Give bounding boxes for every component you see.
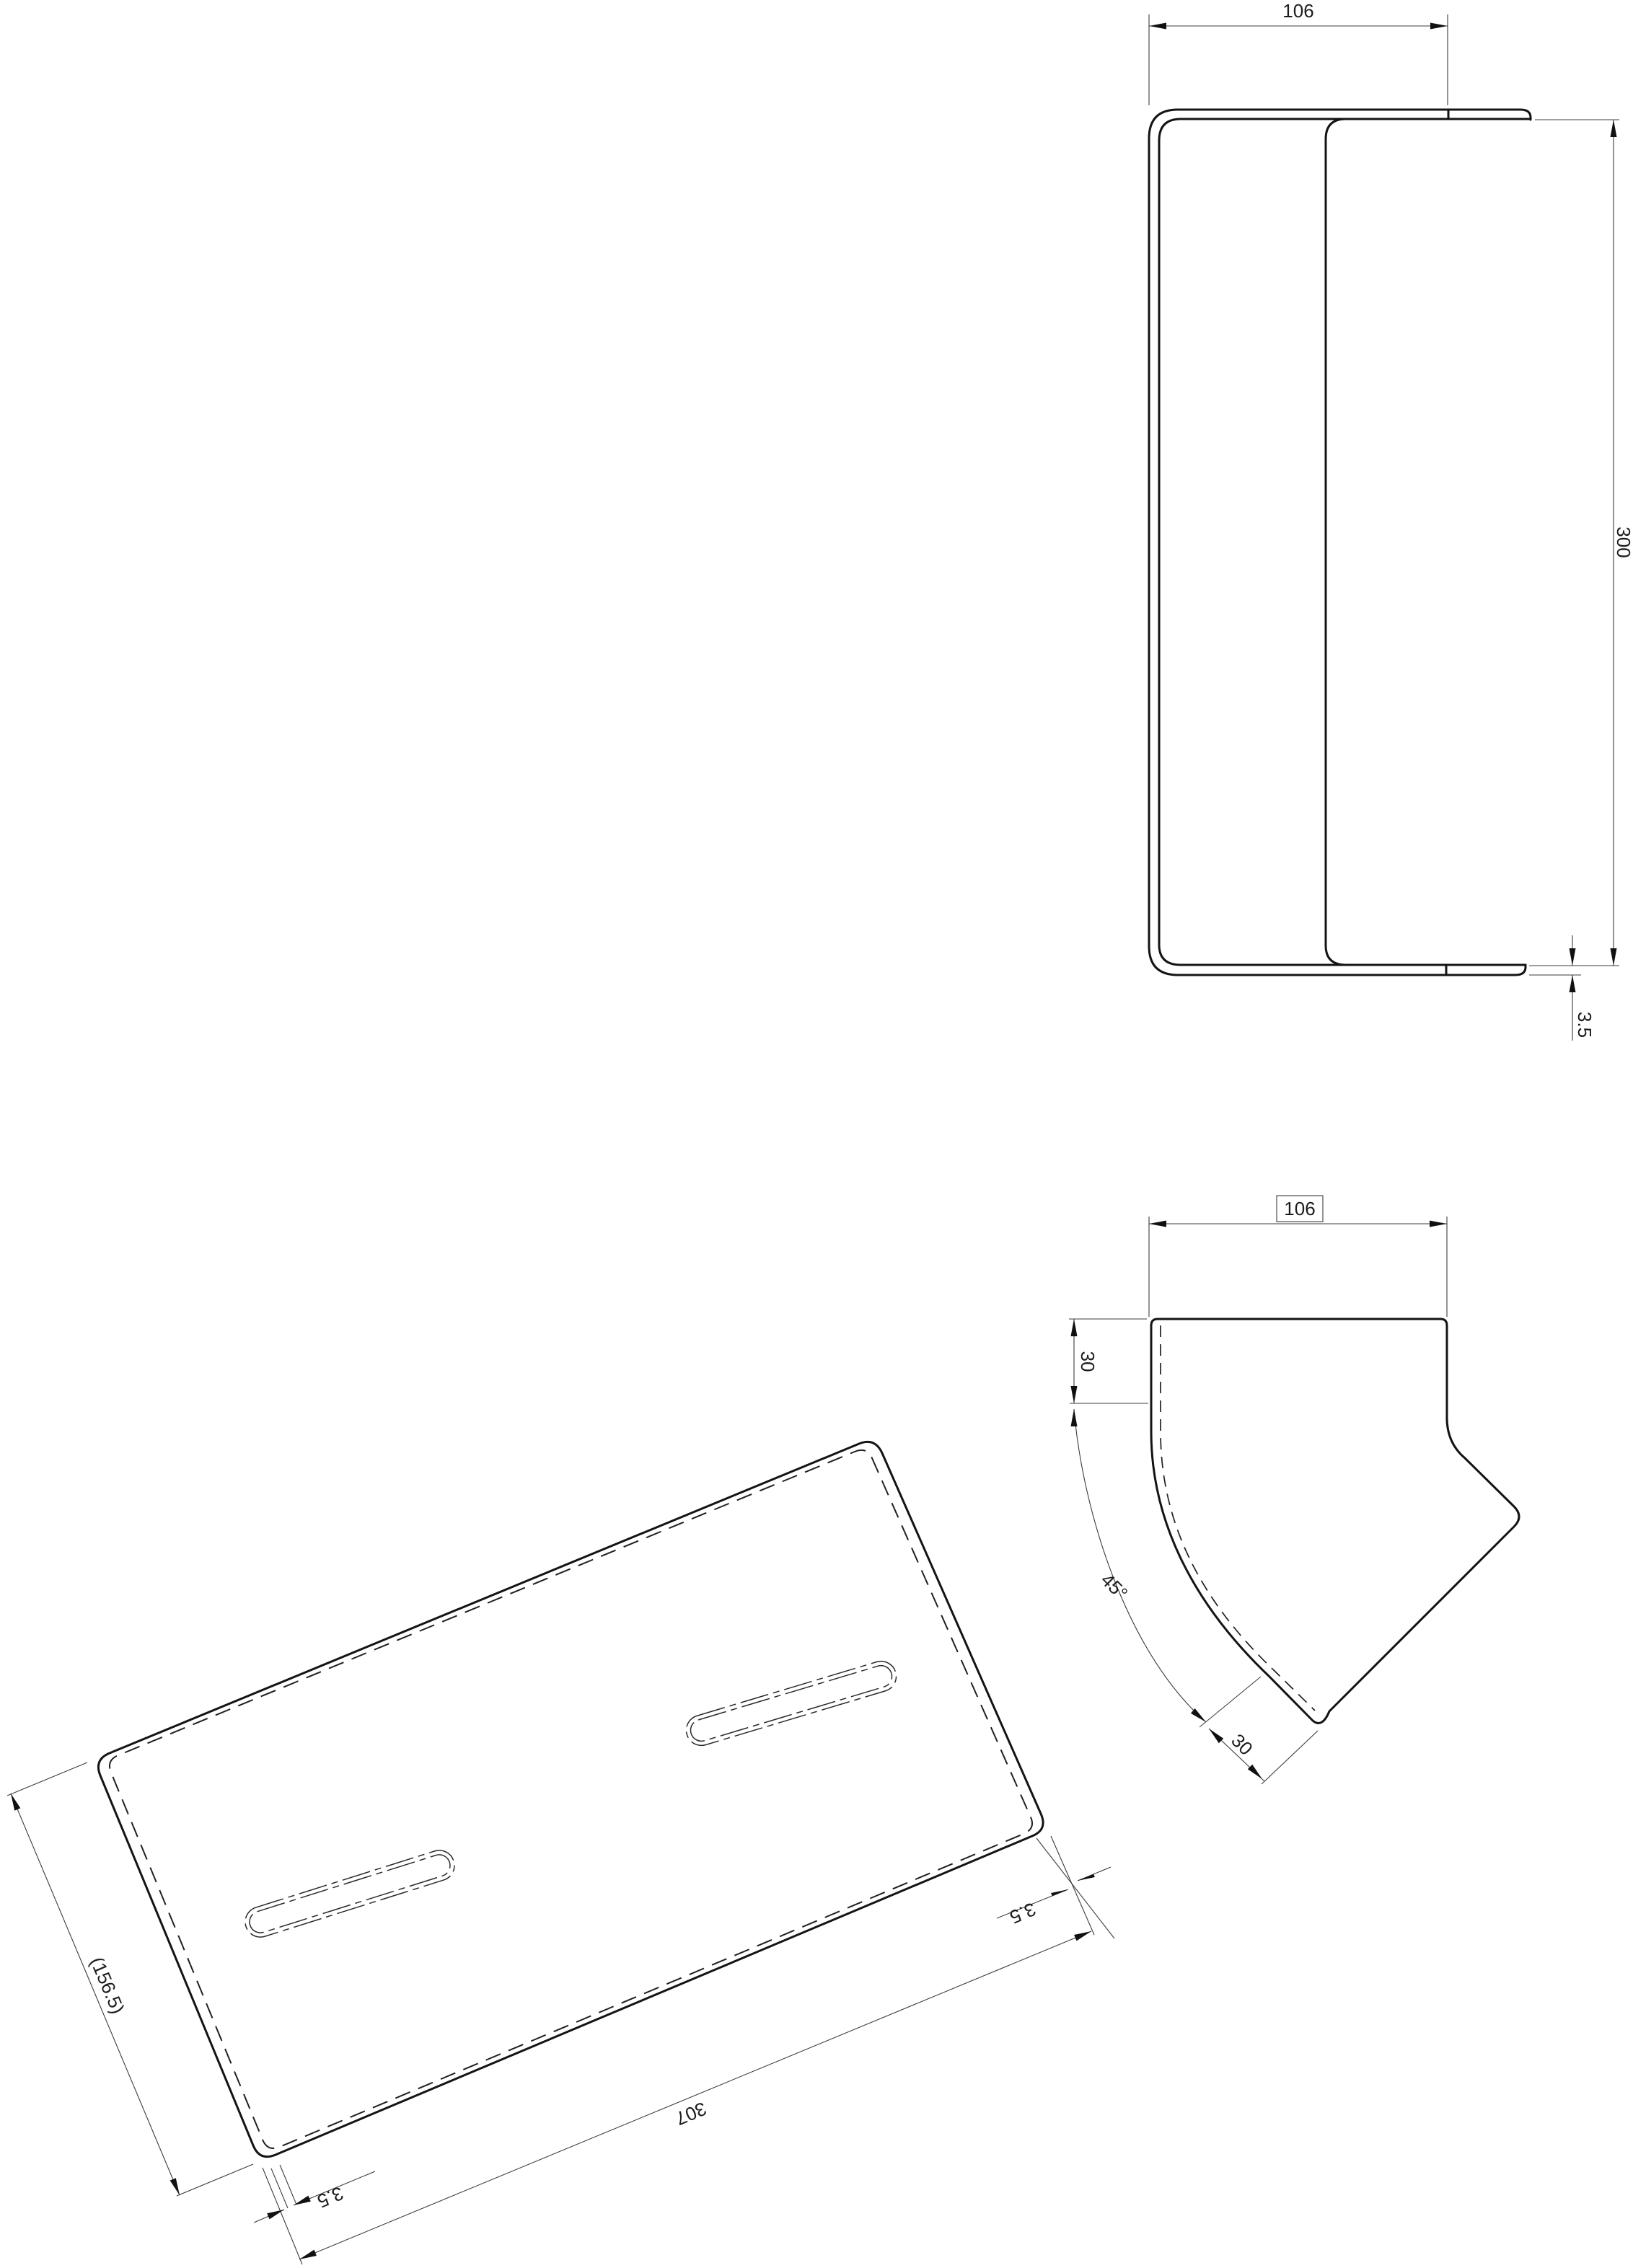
front-outline-inner	[1159, 119, 1531, 965]
flat-pattern-view: (156.5) 307 3.5 3.5	[7, 1442, 1114, 2264]
flat-thickness-right-ext-line	[1036, 1838, 1114, 1938]
technical-drawing: 106 300 3.5 106 30 45° 30	[0, 0, 1633, 2268]
dim-front-height: 300	[1613, 526, 1633, 557]
side-view: 106 30 45° 30	[1069, 1196, 1519, 1784]
dim-side-width: 106	[1284, 1198, 1315, 1219]
front-outline-outer	[1149, 110, 1448, 975]
dim-flat-width-ref: (156.5)	[86, 1954, 129, 2017]
side-width-ext-lines	[1149, 1217, 1447, 1317]
dim-front-thickness: 3.5	[1574, 1012, 1595, 1038]
dim-side-flange: 30	[1227, 1729, 1257, 1760]
side-outline	[1151, 1319, 1519, 1723]
front-bend-line	[1326, 119, 1346, 965]
dim-front-width: 106	[1282, 0, 1313, 22]
front-height-ext-lines	[1529, 120, 1619, 966]
dim-side-offset: 30	[1077, 1351, 1099, 1372]
drawing-sheet: 106 300 3.5 106 30 45° 30	[0, 0, 1633, 2268]
front-bottom-lip	[1446, 965, 1526, 975]
dimension-arrows	[1149, 23, 1617, 993]
dim-flat-thickness-left: 3.5	[314, 2182, 347, 2212]
front-lip-jogs	[1446, 110, 1448, 975]
dim-side-angle: 45°	[1096, 1568, 1132, 1604]
front-view: 106 300 3.5	[1149, 0, 1633, 1041]
dim-flat-thickness-right: 3.5	[1007, 1898, 1039, 1928]
flat-outline	[98, 1442, 1043, 2156]
front-width-ext-lines	[1149, 14, 1448, 105]
flat-thickness-left-ext-lines	[271, 2165, 296, 2208]
